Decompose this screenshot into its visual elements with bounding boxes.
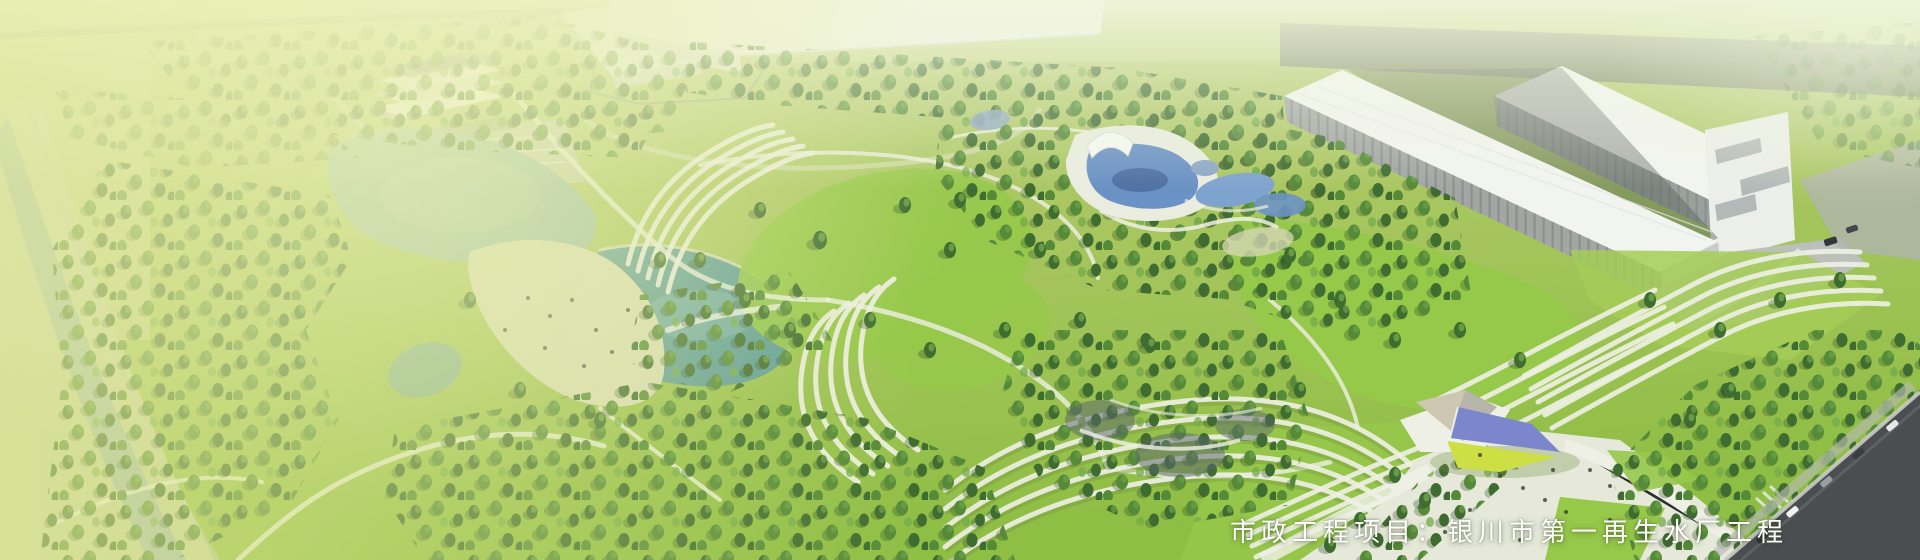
aerial-rendering-canvas (0, 0, 1920, 560)
top-left-haze (0, 0, 980, 500)
project-banner: 市政工程项目：银川市第一再生水厂工程 (0, 0, 1920, 560)
project-caption: 市政工程项目：银川市第一再生水厂工程 (1230, 512, 1788, 549)
top-right-haze (1600, 0, 1920, 210)
